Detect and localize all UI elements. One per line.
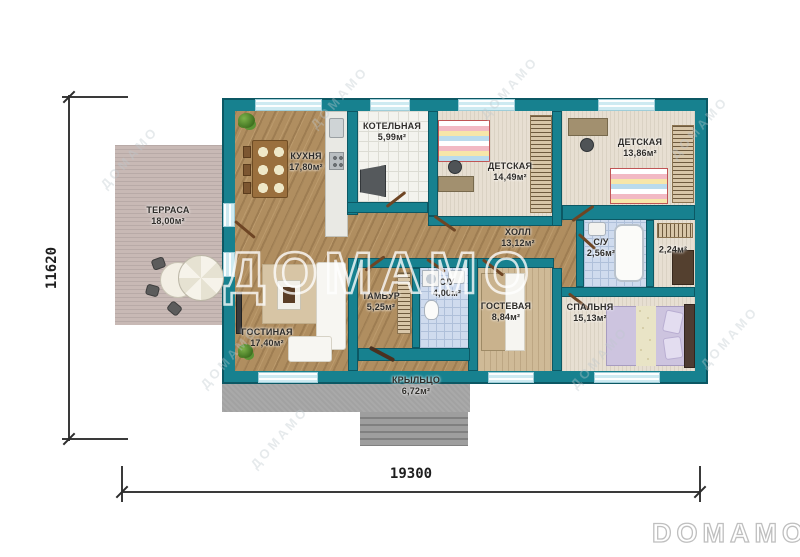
kitchen-sink (329, 118, 344, 138)
domamo-logo: DOMAMO (652, 518, 800, 549)
floor-plan-canvas: ТЕРРАСА 18,00м² КУХНЯ 17,80м² КОТЕЛЬНАЯ … (0, 0, 800, 557)
dimension-line-width (122, 491, 700, 493)
watermark-tile: ДОМАМО (247, 403, 311, 471)
room-name: КОТЕЛЬНАЯ (363, 121, 421, 131)
room-area: 15,13м² (573, 313, 607, 323)
room-area: 13,86м² (623, 148, 657, 158)
room-name: С/У (593, 237, 608, 247)
room-label-guest: ГОСТЕВАЯ 8,84м² (481, 301, 531, 323)
window-bedroom-south (594, 372, 660, 383)
room-label-kitchen: КУХНЯ 17,80м² (289, 151, 323, 173)
kids1-wardrobe (530, 115, 552, 213)
kitchen-plant (238, 113, 255, 128)
kids1-desk (438, 176, 474, 192)
wall-kids1-kids2 (552, 111, 562, 226)
dimension-line-height (68, 95, 70, 441)
room-name: ГОСТИНАЯ (241, 327, 292, 337)
room-label-boiler: КОТЕЛЬНАЯ 5,99м² (363, 121, 421, 143)
bedroom-pillow (663, 336, 684, 360)
kids2-chair (580, 138, 594, 152)
room-label-hall: ХОЛЛ 13,12м² (501, 227, 535, 249)
bathtub (614, 224, 644, 282)
room-label-kids1: ДЕТСКАЯ 14,49м² (488, 161, 532, 183)
dimension-ext-left (121, 466, 123, 502)
wall-corridor-bath-small (576, 220, 584, 287)
room-label-porch: КРЫЛЬЦО 6,72м² (392, 375, 440, 397)
wall-vestibule-bath-main (412, 268, 420, 348)
room-area: 14,49м² (493, 172, 527, 182)
room-name: ТЕРРАСА (146, 205, 189, 215)
room-name: С/У (439, 277, 454, 287)
room-name: КРЫЛЬЦО (392, 375, 440, 385)
dimension-ext-bottom (62, 438, 128, 440)
room-name: СПАЛЬНЯ (567, 302, 614, 312)
room-area: 2,56м² (587, 248, 615, 258)
closet-hanger-rod (657, 223, 693, 238)
boiler-unit (360, 165, 386, 197)
room-label-closet: 2,24м² (659, 245, 687, 256)
terrace-umbrella (178, 255, 224, 301)
room-label-vestibule: ТАМБУР 5,25м² (362, 291, 400, 313)
room-name: ДЕТСКАЯ (618, 137, 662, 147)
wall-kitchen-boiler (347, 111, 358, 215)
kids2-desk (568, 118, 608, 136)
room-area: 6,72м² (402, 386, 430, 396)
wall-boiler-kids1 (428, 111, 438, 216)
room-name: КУХНЯ (290, 151, 321, 161)
dimension-ext-top (62, 96, 128, 98)
room-name: ГОСТЕВАЯ (481, 301, 531, 311)
terrace-door-glass-upper (223, 203, 235, 227)
room-area: 17,40м² (250, 338, 284, 348)
dining-chair (243, 164, 251, 176)
room-area: 2,24м² (659, 245, 687, 255)
room-area: 18,00м² (151, 216, 185, 226)
window-kids1-north (458, 99, 515, 111)
dimension-height-label: 11620 (44, 247, 60, 289)
dining-table (252, 140, 288, 198)
room-name: ХОЛЛ (505, 227, 531, 237)
window-guest-south (488, 372, 534, 383)
window-kitchen-north (255, 99, 322, 111)
dimension-width-label: 19300 (390, 466, 432, 482)
kids2-wardrobe (672, 125, 694, 203)
room-label-living: ГОСТИНАЯ 17,40м² (241, 327, 292, 349)
room-name: ТАМБУР (362, 291, 400, 301)
wall-living-vestibule (348, 258, 358, 371)
room-area: 5,25м² (367, 302, 395, 312)
room-label-bath-main: С/У 4,00м² (433, 277, 461, 299)
room-area: 17,80м² (289, 162, 323, 172)
toilet (424, 300, 439, 320)
bedroom-headboard (684, 304, 695, 368)
room-label-terrace: ТЕРРАСА 18,00м² (146, 205, 189, 227)
dining-chair (243, 182, 251, 194)
living-table (277, 280, 301, 310)
porch-steps (360, 412, 468, 446)
room-name: ДЕТСКАЯ (488, 161, 532, 171)
room-label-bedroom: СПАЛЬНЯ 15,13м² (567, 302, 614, 324)
kids1-chair (448, 160, 462, 174)
bath-small-sink (588, 222, 606, 236)
room-area: 4,00м² (433, 288, 461, 298)
window-kids2-north (598, 99, 655, 111)
room-area: 8,84м² (492, 312, 520, 322)
dining-chair (243, 146, 251, 158)
kids1-bed (438, 120, 490, 162)
wall-bath-small-closet (646, 220, 654, 287)
dimension-ext-right (699, 466, 701, 502)
kids2-bed (610, 168, 668, 204)
room-label-bath-small: С/У 2,56м² (587, 237, 615, 259)
kitchen-stove (329, 152, 344, 170)
window-boiler-north (370, 99, 410, 111)
room-area: 13,12м² (501, 238, 535, 248)
living-sofa-chaise (288, 336, 332, 362)
bedroom-bed-runner (636, 306, 656, 366)
wall-guest-bedroom (552, 268, 562, 371)
room-area: 5,99м² (378, 132, 406, 142)
window-living-south (258, 372, 318, 383)
terrace-door-glass-lower (223, 252, 235, 277)
room-label-kids2: ДЕТСКАЯ 13,86м² (618, 137, 662, 159)
